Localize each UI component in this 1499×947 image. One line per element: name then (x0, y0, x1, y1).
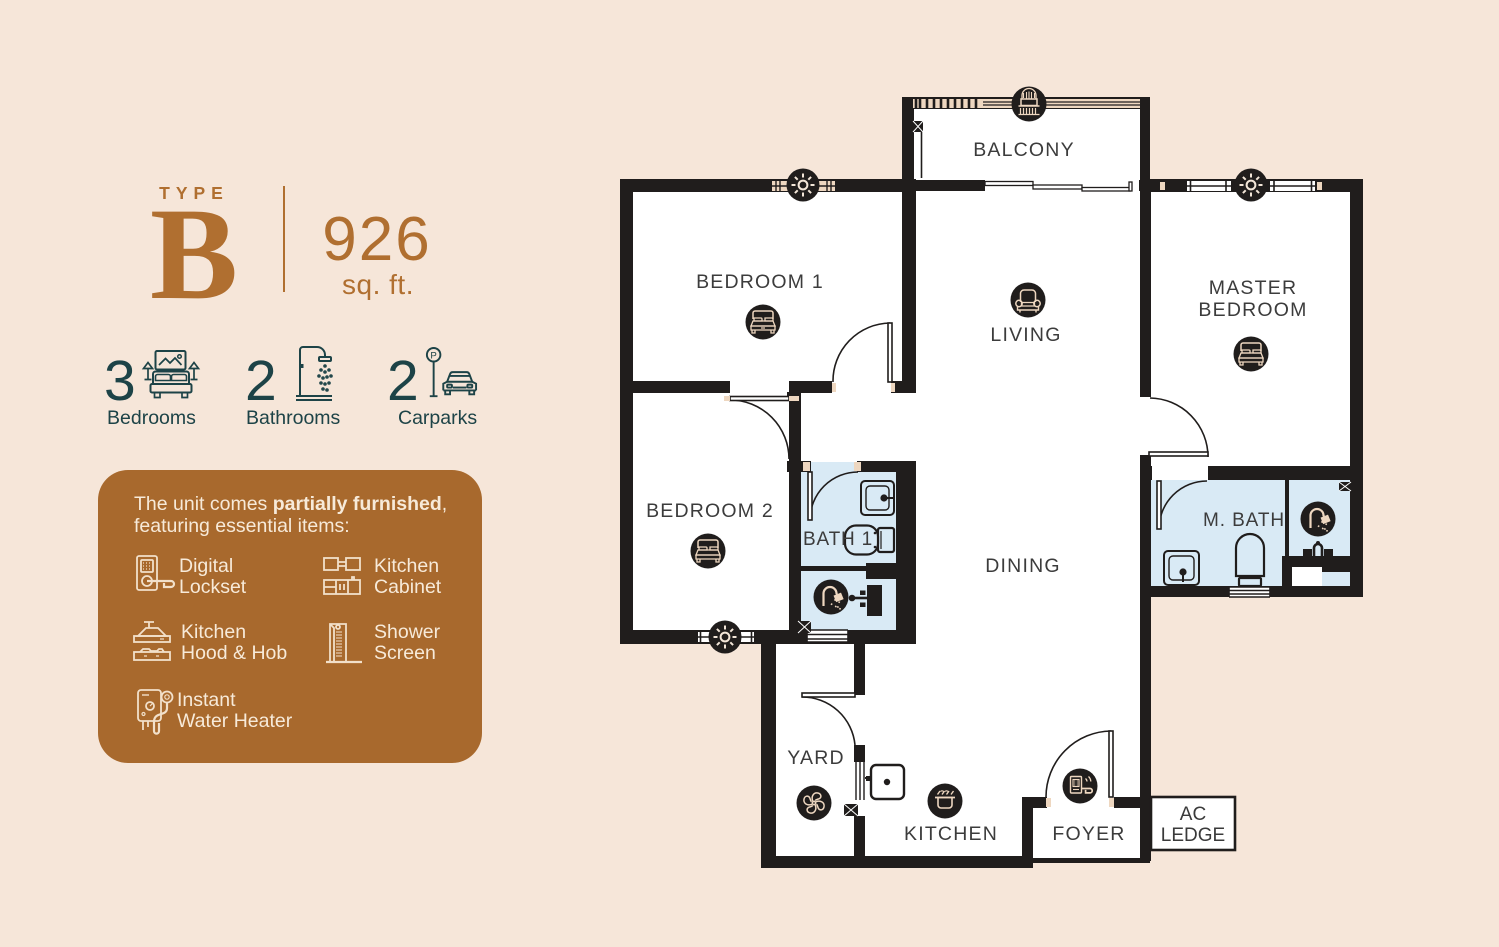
svg-text:BEDROOM: BEDROOM (1198, 299, 1307, 321)
svg-text:AC: AC (1180, 804, 1206, 825)
svg-text:FOYER: FOYER (1052, 823, 1125, 845)
svg-text:KITCHEN: KITCHEN (904, 823, 998, 845)
svg-text:MASTER: MASTER (1209, 277, 1297, 299)
svg-text:YARD: YARD (787, 747, 845, 769)
svg-text:BALCONY: BALCONY (973, 139, 1075, 161)
svg-text:BEDROOM 2: BEDROOM 2 (646, 500, 774, 522)
svg-text:LEDGE: LEDGE (1161, 825, 1225, 846)
svg-text:LIVING: LIVING (990, 324, 1061, 346)
svg-text:DINING: DINING (985, 555, 1060, 577)
svg-text:BEDROOM 1: BEDROOM 1 (696, 271, 824, 293)
svg-text:M. BATH: M. BATH (1203, 510, 1285, 531)
svg-text:BATH 1: BATH 1 (803, 529, 873, 550)
